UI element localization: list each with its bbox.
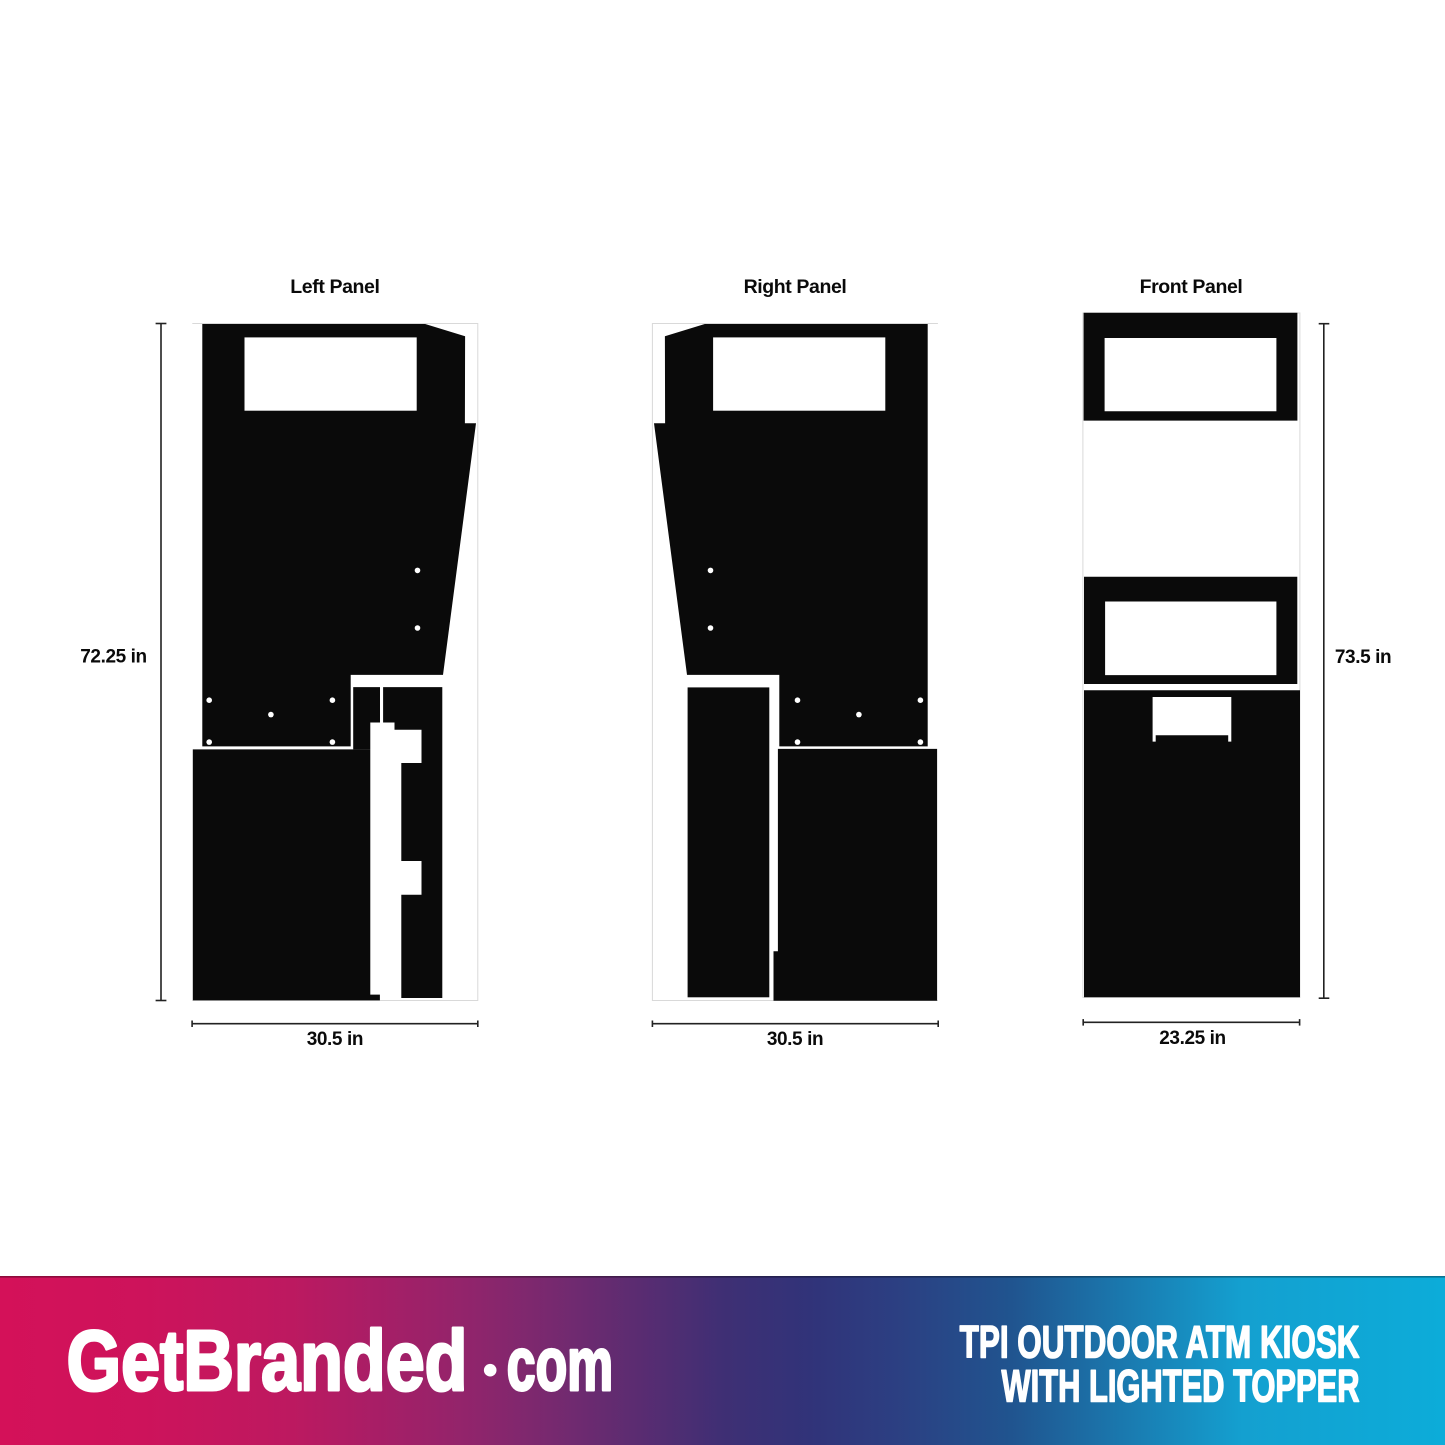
svg-text:com: com bbox=[507, 1322, 613, 1406]
svg-text:30.5 in: 30.5 in bbox=[767, 1029, 823, 1050]
svg-text:23.25 in: 23.25 in bbox=[1159, 1028, 1226, 1049]
svg-text:Front Panel: Front Panel bbox=[1140, 276, 1243, 298]
svg-text:WITH LIGHTED TOPPER: WITH LIGHTED TOPPER bbox=[1001, 1362, 1359, 1412]
svg-text:30.5 in: 30.5 in bbox=[307, 1029, 363, 1050]
svg-text:GetBranded: GetBranded bbox=[67, 1313, 468, 1409]
svg-text:73.5 in: 73.5 in bbox=[1335, 647, 1391, 668]
svg-text:TPI OUTDOOR ATM KIOSK: TPI OUTDOOR ATM KIOSK bbox=[960, 1318, 1360, 1368]
svg-text:72.25 in: 72.25 in bbox=[80, 646, 147, 667]
svg-text:Right Panel: Right Panel bbox=[744, 276, 847, 298]
svg-text:Left Panel: Left Panel bbox=[290, 276, 379, 298]
